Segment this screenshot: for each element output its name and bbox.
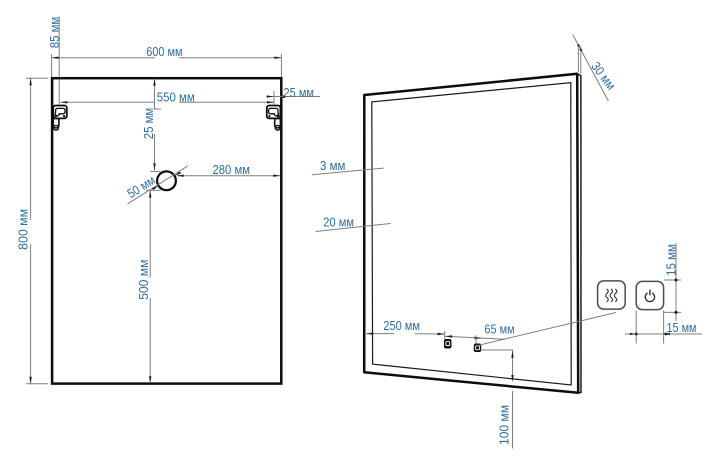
svg-text:85 мм: 85 мм [47, 17, 62, 49]
svg-text:800 мм: 800 мм [16, 209, 31, 250]
svg-text:25 мм: 25 мм [141, 108, 156, 140]
svg-text:550 мм: 550 мм [157, 89, 195, 104]
svg-text:600 мм: 600 мм [146, 44, 182, 59]
svg-text:65 мм: 65 мм [484, 322, 514, 337]
svg-text:280 мм: 280 мм [213, 162, 251, 177]
svg-text:500 мм: 500 мм [136, 260, 151, 300]
svg-text:20 мм: 20 мм [323, 214, 354, 229]
svg-text:25 мм: 25 мм [284, 85, 315, 100]
svg-text:250 мм: 250 мм [383, 318, 420, 333]
svg-text:15 мм: 15 мм [667, 320, 697, 335]
svg-text:3 мм: 3 мм [320, 158, 345, 173]
svg-text:100 мм: 100 мм [497, 405, 512, 445]
svg-text:15 мм: 15 мм [663, 244, 678, 276]
